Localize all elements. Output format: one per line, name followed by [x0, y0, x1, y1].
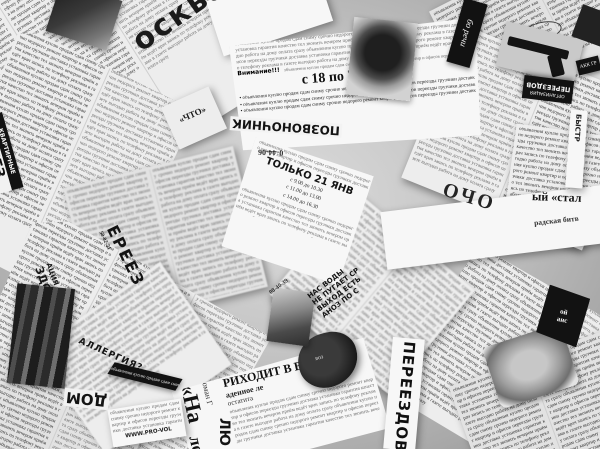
newspaper-collage-photo: объявления куплю продам сдам сниму срочн…	[0, 0, 600, 449]
bo-rechi-label: бо речи	[458, 18, 475, 48]
phone-upside-down: 0-44-06	[258, 148, 284, 158]
kettle-photo-clipping	[346, 17, 418, 101]
lyu-letters: ЛЮ	[216, 418, 232, 446]
voz-label: воз	[315, 354, 324, 362]
dark-figures-photo	[7, 283, 75, 389]
stal-headline: ый «стал	[532, 189, 582, 206]
ans-letters: анс	[556, 315, 568, 325]
pereezdov-vertical-label: ПЕРЕЕЗДОВ	[391, 341, 419, 449]
akk-label-text: АКК ГР	[580, 61, 598, 70]
bystro-label: БЫСТР	[573, 114, 583, 142]
chto-label: «ЧТО»	[167, 99, 219, 129]
